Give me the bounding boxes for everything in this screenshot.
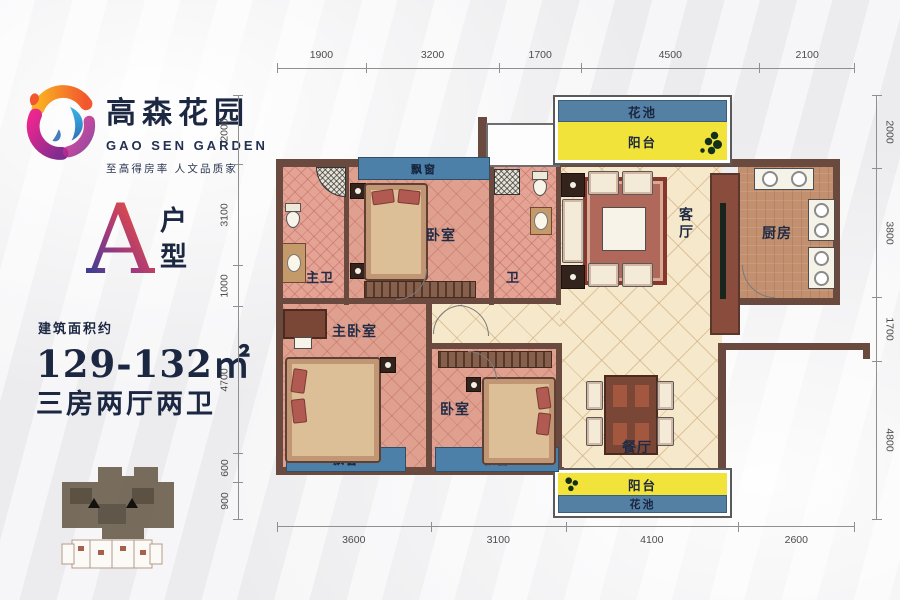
floorplan: 花池 阳台 阳台 花池 飘窗 — [280, 95, 855, 520]
master-bedroom-label: 主卧室 — [332, 321, 377, 341]
balcony-bottom: 阳台 花池 — [553, 468, 732, 518]
dim-top-2: 1700 — [529, 49, 552, 61]
sofa — [562, 199, 584, 263]
bay-window-top-label: 飘窗 — [411, 161, 437, 177]
master-bath-label: 主卫 — [306, 267, 334, 286]
bed — [482, 377, 556, 465]
wardrobe — [438, 351, 552, 368]
toilet — [285, 203, 301, 227]
unit-type-label: 户型 — [152, 206, 191, 316]
flower-bed-top-label: 花池 — [628, 102, 657, 121]
flower-bed-top: 花池 — [558, 100, 727, 122]
dining-chair — [657, 381, 674, 410]
dim-left-0: 2000 — [219, 118, 231, 141]
armchair — [622, 171, 653, 195]
dining-room-label: 餐厅 — [622, 437, 652, 457]
floorplan-page: 高森花园 GAO SEN GARDEN 至高得房率 人文品质家 A 户型 建筑面… — [0, 0, 900, 600]
living-room-label: 客厅 — [676, 207, 696, 241]
brand-slogan: 至高得房率 人文品质家 — [106, 161, 268, 176]
tv — [720, 203, 726, 299]
placemat — [613, 385, 627, 407]
kitchen-sink — [754, 168, 814, 190]
brand-name-cn: 高森花园 — [106, 88, 268, 132]
washing-machine — [494, 169, 520, 195]
wall — [718, 343, 870, 350]
bathroom-sink — [282, 243, 306, 283]
dim-bottom-2: 4100 — [640, 534, 663, 546]
dining-chair — [657, 417, 674, 446]
desk-chair — [294, 337, 312, 349]
stove — [808, 247, 835, 289]
dim-right-1: 3800 — [884, 221, 896, 244]
dim-top-3: 4500 — [659, 49, 682, 61]
coffee-table — [602, 207, 646, 251]
public-corridor — [486, 123, 560, 167]
wall — [428, 343, 562, 349]
armchair — [588, 171, 619, 195]
dimension-line-left: 2000 3100 1000 4700 600 900 — [218, 95, 239, 520]
dim-right-2: 1700 — [884, 317, 896, 340]
desk — [283, 309, 327, 339]
key-plan-thumbnail — [32, 446, 192, 574]
dimension-line-top: 1900 3200 1700 4500 2100 — [277, 48, 855, 69]
dim-left-3: 4700 — [219, 368, 231, 391]
balcony-top-label: 阳台 — [628, 132, 657, 151]
bay-window-top: 飘窗 — [358, 157, 490, 180]
dim-bottom-3: 2600 — [785, 534, 808, 546]
dim-top-4: 2100 — [796, 49, 819, 61]
dim-top-0: 1900 — [310, 49, 333, 61]
plant-icon — [695, 127, 725, 159]
wall — [426, 348, 432, 470]
rooms-summary: 三房两厅两卫 — [36, 382, 216, 421]
kitchen-label: 厨房 — [762, 223, 792, 243]
dining-chair — [586, 417, 603, 446]
wall — [426, 303, 432, 350]
wall — [276, 298, 560, 304]
dimension-line-bottom: 3600 3100 4100 2600 — [277, 526, 855, 547]
dim-top-1: 3200 — [421, 49, 444, 61]
dim-left-4: 600 — [219, 459, 231, 477]
placemat — [635, 385, 649, 407]
wall — [863, 343, 870, 359]
end-table — [561, 173, 585, 197]
armchair — [588, 263, 619, 287]
dim-left-5: 900 — [219, 492, 231, 510]
dim-left-1: 3100 — [219, 203, 231, 226]
plant-icon — [560, 473, 584, 495]
dining-chair — [586, 381, 603, 410]
bed — [364, 183, 428, 281]
bed — [285, 357, 381, 463]
stove — [808, 199, 835, 241]
flower-bed-bottom: 花池 — [558, 495, 727, 513]
dim-right-0: 2000 — [884, 120, 896, 143]
bedroom-bottom-label: 卧室 — [440, 399, 470, 419]
brand-logo-icon — [22, 80, 102, 166]
armchair — [622, 263, 653, 287]
tv-wall — [710, 173, 740, 335]
dim-bottom-0: 3600 — [342, 534, 365, 546]
nightstand — [380, 357, 396, 373]
flower-bed-bottom-label: 花池 — [630, 496, 656, 512]
unit-type-letter: A — [86, 192, 155, 288]
dimension-line-right: 2000 3800 1700 4800 — [876, 95, 897, 520]
balcony-bottom-strip: 阳台 — [558, 473, 727, 495]
dim-right-3: 4800 — [884, 429, 896, 452]
wall — [718, 348, 726, 470]
wall — [276, 159, 283, 475]
dim-bottom-1: 3100 — [487, 534, 510, 546]
dim-left-2: 1000 — [219, 274, 231, 297]
balcony-top: 花池 阳台 — [553, 95, 732, 165]
bathroom-sink — [530, 207, 552, 235]
brand-name-en: GAO SEN GARDEN — [106, 138, 268, 153]
brand-text-block: 高森花园 GAO SEN GARDEN 至高得房率 人文品质家 — [106, 88, 268, 176]
balcony-bottom-label: 阳台 — [628, 475, 657, 494]
bedroom-top-label: 卧室 — [426, 225, 456, 245]
end-table — [561, 265, 585, 289]
toilet — [532, 171, 548, 195]
balcony-top-strip: 阳台 — [558, 122, 727, 160]
bath-2-label: 卫 — [506, 267, 520, 286]
